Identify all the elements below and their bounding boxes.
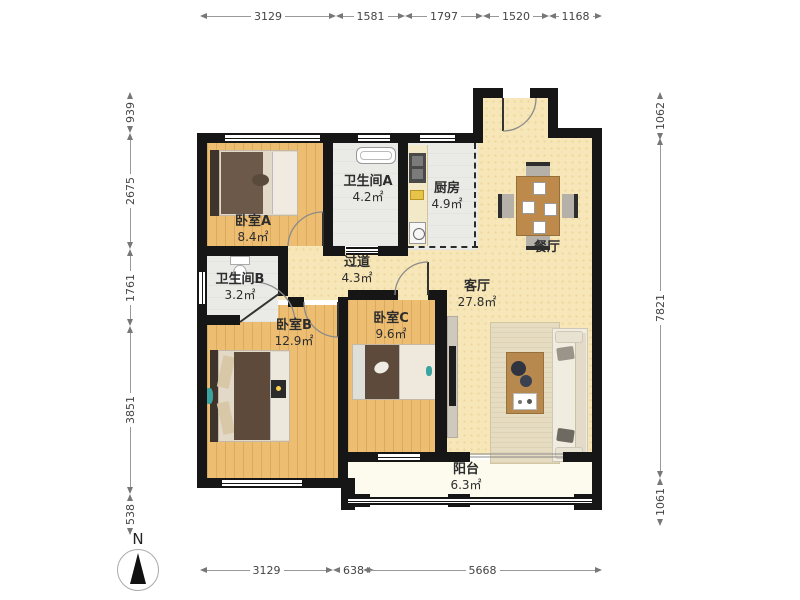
dim-top-4: 1520 (483, 8, 549, 24)
dim-bottom-2: 638 (333, 562, 363, 578)
window (358, 133, 390, 143)
hallway-door-patch (286, 246, 325, 254)
wall (348, 452, 378, 462)
wall (473, 88, 483, 143)
room-label-living: 客厅 27.8㎡ (458, 279, 497, 310)
wall (348, 290, 398, 300)
dim-left-3: 1761 (122, 249, 138, 326)
dining-table-icon (496, 162, 580, 252)
tv-icon (449, 346, 456, 406)
room-area: 27.8㎡ (458, 295, 497, 310)
wall (435, 300, 447, 452)
room-name: 厨房 (431, 181, 462, 197)
window (378, 452, 420, 462)
compass-needle-icon (130, 553, 146, 584)
sofa-icon (552, 328, 588, 462)
room-label-bedroom-c: 卧室C 9.6㎡ (373, 311, 409, 342)
wall (390, 133, 420, 143)
dim-left-5: 538 (122, 494, 138, 520)
room-area: 4.2㎡ (343, 190, 392, 205)
room-name: 卫生间B (216, 272, 265, 288)
window (222, 478, 302, 488)
room-name: 卧室B (275, 318, 314, 334)
bed-a-icon (210, 150, 298, 216)
room-label-bedroom-a: 卧室A 8.4㎡ (235, 214, 271, 245)
wall (197, 246, 288, 256)
dim-right-3: 1061 (652, 478, 668, 524)
wall (563, 452, 593, 462)
room-name: 客厅 (458, 279, 497, 295)
stove-icon (409, 222, 426, 244)
room-label-bedroom-b: 卧室B 12.9㎡ (275, 318, 314, 349)
wall (592, 128, 602, 510)
room-area: 8.4㎡ (235, 230, 271, 245)
compass: N (112, 530, 164, 591)
room-name: 卧室A (235, 214, 271, 230)
room-area: 9.6㎡ (373, 327, 409, 342)
wall (378, 246, 408, 256)
dim-left-4: 3851 (122, 326, 138, 494)
room-area: 3.2㎡ (216, 288, 265, 303)
wall (323, 143, 333, 246)
floor-plan: 3129 1581 1797 1520 1168 939 2675 1761 3… (0, 0, 800, 600)
room-name: 卧室C (373, 311, 409, 327)
room-name: 过道 (341, 255, 372, 271)
wall (338, 297, 348, 478)
dim-right-1: 1062 (652, 92, 668, 138)
room-label-bathroom-a: 卫生间A 4.2㎡ (343, 174, 392, 205)
wall (428, 290, 447, 300)
sink-icon (409, 153, 426, 183)
room-label-bathroom-b: 卫生间B 3.2㎡ (216, 272, 265, 303)
wall (288, 297, 304, 307)
window (225, 133, 320, 143)
room-area: 6.3㎡ (450, 478, 481, 493)
wall (420, 452, 470, 462)
wall (398, 143, 408, 246)
room-label-kitchen: 厨房 4.9㎡ (431, 181, 462, 212)
bathroom-a-slider (346, 247, 378, 255)
wall (197, 304, 207, 488)
room-label-dining: 餐厅 (534, 240, 560, 256)
wall (320, 133, 358, 143)
kitchen-open-boundary (474, 143, 476, 247)
room-name: 餐厅 (534, 240, 560, 256)
dim-top-5: 1168 (549, 8, 602, 24)
room-label-balcony: 阳台 6.3㎡ (450, 462, 481, 493)
entry-floor (483, 98, 548, 138)
kitchen-open-boundary (408, 246, 478, 248)
dim-top-2: 1581 (336, 8, 405, 24)
window (197, 272, 207, 304)
coffee-table-icon (506, 352, 544, 414)
room-name: 阳台 (450, 462, 481, 478)
bathtub-icon (356, 147, 396, 164)
balcony-window (348, 497, 592, 505)
dim-bottom-3: 5668 (363, 562, 602, 578)
bed-b-icon (210, 350, 290, 442)
room-name: 卫生间A (343, 174, 392, 190)
dim-left-1: 939 (122, 92, 138, 133)
kitchen-counter (408, 145, 428, 246)
dim-left-2: 2675 (122, 133, 138, 249)
room-area: 12.9㎡ (275, 334, 314, 349)
dim-top-1: 3129 (200, 8, 336, 24)
wall (197, 315, 240, 325)
dim-right-2: 7821 (652, 138, 668, 478)
bed-c-icon (352, 344, 436, 400)
dim-top-3: 1797 (405, 8, 483, 24)
room-area: 4.3㎡ (341, 271, 372, 286)
room-label-hallway: 过道 4.3㎡ (341, 255, 372, 286)
window (420, 133, 455, 143)
compass-north-label: N (112, 530, 164, 548)
compass-circle (117, 549, 159, 591)
dim-bottom-1: 3129 (200, 562, 333, 578)
wall (197, 478, 222, 488)
wall (278, 250, 288, 296)
room-area: 4.9㎡ (431, 197, 462, 212)
